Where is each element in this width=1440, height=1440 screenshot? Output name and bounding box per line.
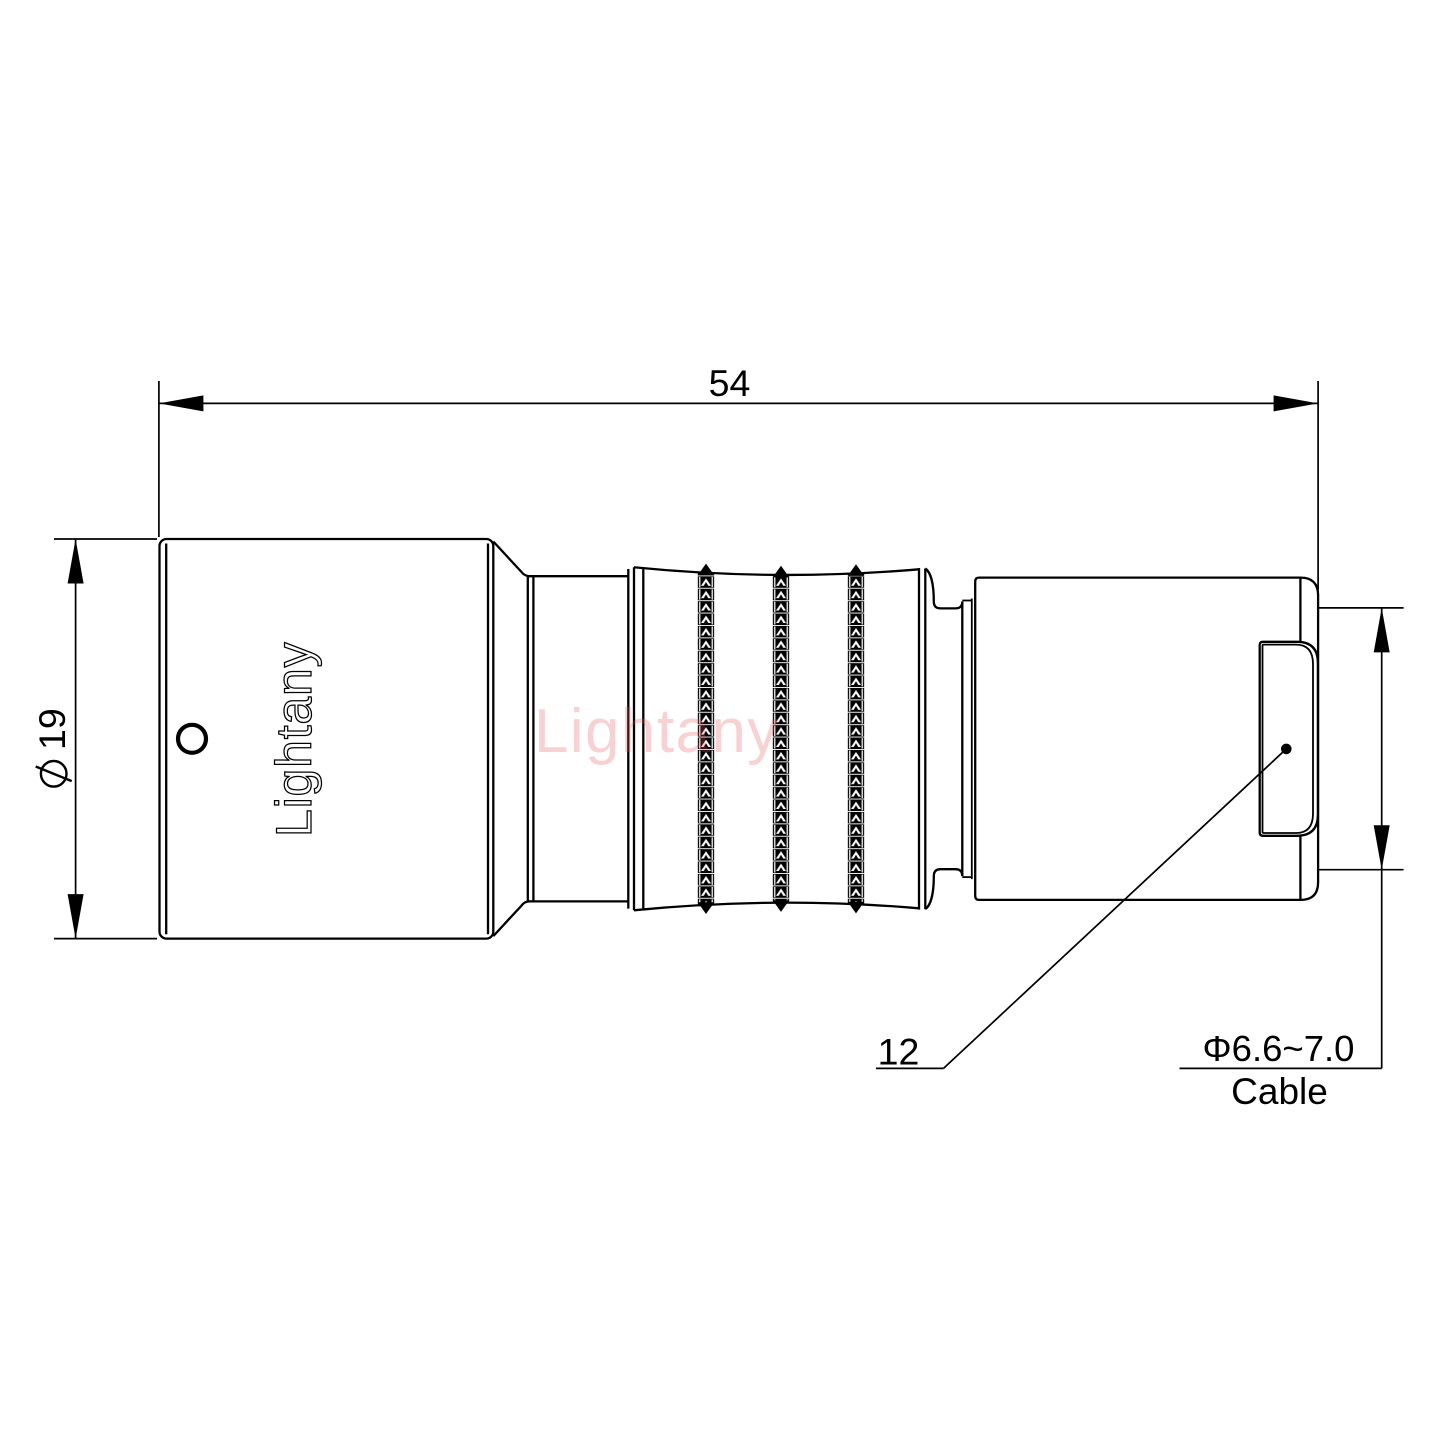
svg-text:Φ6.6~7.0: Φ6.6~7.0 (1203, 1028, 1355, 1069)
svg-text:Lightany: Lightany (266, 642, 322, 837)
svg-text:Cable: Cable (1231, 1071, 1328, 1112)
svg-text:19: 19 (31, 708, 73, 750)
svg-text:Lightany: Lightany (534, 697, 780, 766)
svg-text:54: 54 (709, 362, 751, 404)
svg-text:12: 12 (878, 1031, 920, 1073)
